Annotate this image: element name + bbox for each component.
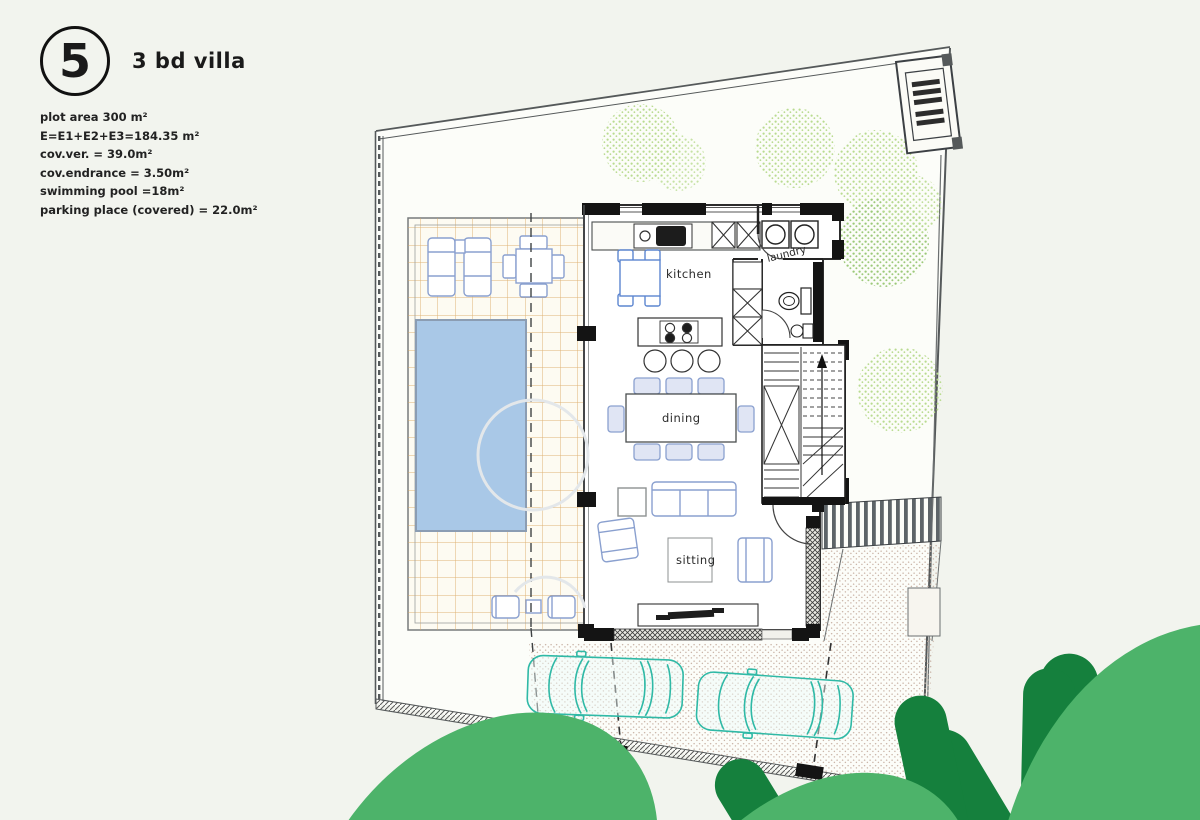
bush — [755, 108, 835, 188]
car-1 — [527, 650, 684, 724]
sofa — [652, 482, 736, 516]
swimming-pool — [416, 320, 526, 531]
bush — [650, 135, 706, 191]
sitting-label: sitting — [676, 553, 716, 567]
side-table — [618, 488, 646, 516]
kitchen-label: kitchen — [666, 267, 712, 281]
south-wall — [584, 628, 809, 641]
floor-plan-sheet: 5 3 bd villa plot area 300 m² E=E1+E2+E3… — [0, 0, 1200, 820]
site-plan-drawing: kitchen laundry — [0, 0, 1200, 820]
armchair-left — [597, 518, 638, 563]
bush — [857, 347, 943, 433]
dining-label: dining — [662, 411, 701, 425]
wc-cabinets — [733, 262, 762, 345]
villa: kitchen laundry — [577, 203, 849, 641]
kitchen-sink — [656, 226, 686, 246]
sitting-east-wall — [806, 516, 820, 638]
bush — [882, 175, 942, 235]
armchair-right — [738, 538, 772, 582]
utility-box — [896, 53, 963, 155]
door-sill — [762, 630, 792, 639]
entry-pad — [908, 588, 940, 636]
terrace — [408, 213, 584, 630]
